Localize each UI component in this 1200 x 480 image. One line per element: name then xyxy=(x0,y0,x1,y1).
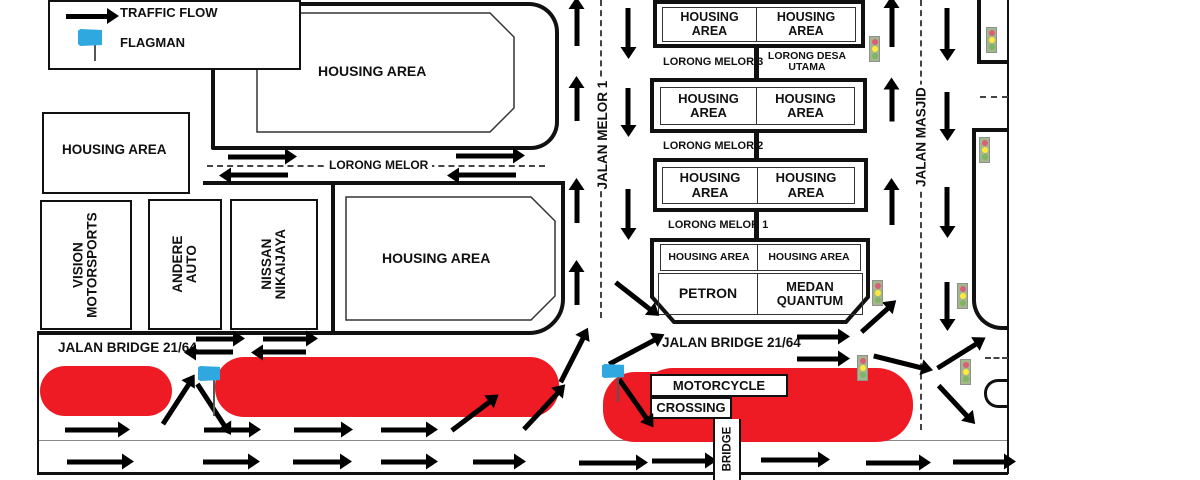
side-road-top-left-edge xyxy=(977,0,981,63)
traffic-flow-arrow xyxy=(945,92,950,130)
side-road-corner xyxy=(984,379,1008,408)
business-nissan-nikaijaya-label: NISSAN NIKAIJAYA xyxy=(260,223,288,307)
traffic-flow-arrow xyxy=(797,357,839,362)
bridge-strip: BRIDGE xyxy=(713,419,741,480)
traffic-flow-arrow xyxy=(626,189,631,229)
traffic-flow-arrow xyxy=(945,8,950,50)
crossing-label: CROSSING xyxy=(656,401,725,415)
traffic-flow-arrow xyxy=(890,189,895,225)
housing-row4-right: HOUSING AREA xyxy=(757,244,861,271)
side-road-stub-top xyxy=(980,96,1008,98)
traffic-flow-icon xyxy=(66,14,108,19)
traffic-flow-arrow xyxy=(937,384,969,418)
traffic-flow-arrow xyxy=(458,173,516,178)
lorong-melor-2-label: LORONG MELOR 2 xyxy=(663,141,763,153)
petron-cell: PETRON xyxy=(658,273,758,315)
housing-row3-right: HOUSING AREA xyxy=(757,167,855,204)
jalan-bridge-top-edge xyxy=(37,331,336,335)
motorcycle-label: MOTORCYCLE xyxy=(673,379,765,393)
traffic-flow-arrow xyxy=(945,282,950,320)
traffic-flow-arrow xyxy=(228,155,286,160)
jalan-melor-1-label: JALAN MELOR 1 xyxy=(596,80,610,190)
crossing-label-box: CROSSING xyxy=(650,397,732,419)
traffic-flow-arrow xyxy=(67,460,123,465)
traffic-light-icon xyxy=(872,280,883,306)
business-vision-motorsports-label: VISION MOTORSPORTS xyxy=(72,212,100,318)
traffic-light-icon xyxy=(957,283,968,309)
traffic-flow-arrow xyxy=(293,460,341,465)
bottom-road-edge xyxy=(37,472,1008,475)
business-vision-motorsports: VISION MOTORSPORTS xyxy=(40,200,132,330)
traffic-flow-arrow xyxy=(558,337,585,384)
side-road-u-shape xyxy=(972,128,1008,330)
traffic-flow-arrow xyxy=(626,88,631,126)
traffic-flow-arrow xyxy=(381,428,427,433)
traffic-flow-arrow xyxy=(953,460,1005,465)
jalan-bridge-left-label: JALAN BRIDGE 21/64 xyxy=(58,341,197,355)
bridge-label: BRIDGE xyxy=(721,427,733,472)
medan-quantum-cell: MEDAN QUANTUM xyxy=(757,273,863,315)
traffic-flow-arrow xyxy=(761,458,819,463)
housing-row1-right: HOUSING AREA xyxy=(756,7,856,42)
housing-row4-left: HOUSING AREA xyxy=(660,244,758,271)
business-andere-auto-label: ANDERE AUTO xyxy=(171,230,199,300)
road-closure-center xyxy=(215,357,559,417)
traffic-flow-arrow xyxy=(195,350,233,355)
traffic-flow-arrow xyxy=(65,428,119,433)
business-nissan-nikaijaya: NISSAN NIKAIJAYA xyxy=(230,199,318,330)
traffic-flow-arrow xyxy=(936,342,978,371)
housing-row2-left: HOUSING AREA xyxy=(660,87,757,125)
traffic-flow-arrow xyxy=(608,338,656,367)
traffic-flow-arrow xyxy=(262,350,306,355)
lorong-desa-utama-label: LORONG DESA UTAMA xyxy=(766,51,848,73)
lorong-melor-label: LORONG MELOR xyxy=(325,159,432,172)
traffic-flow-arrow xyxy=(575,271,580,305)
traffic-flow-arrow xyxy=(626,8,631,48)
traffic-flow-arrow xyxy=(456,154,514,159)
business-andere-auto: ANDERE AUTO xyxy=(148,199,222,330)
motorcycle-label-box: MOTORCYCLE xyxy=(650,374,788,397)
traffic-flow-arrow xyxy=(579,461,637,466)
legend-flagman-label: FLAGMAN xyxy=(120,36,185,50)
housing-row1-left: HOUSING AREA xyxy=(662,7,757,42)
traffic-flow-arrow xyxy=(575,87,580,121)
legend-traffic-flow-label: TRAFFIC FLOW xyxy=(120,6,217,20)
traffic-flow-arrow xyxy=(196,337,234,342)
traffic-flow-arrow xyxy=(797,335,839,340)
lorong-melor-3-label: LORONG MELOR 3 xyxy=(663,57,763,69)
traffic-light-icon xyxy=(979,137,990,163)
traffic-flow-arrow xyxy=(294,428,342,433)
housing-left-label: HOUSING AREA xyxy=(62,143,167,157)
housing-row2-right: HOUSING AREA xyxy=(756,87,855,125)
traffic-flow-arrow xyxy=(890,89,895,122)
housing-row3-left: HOUSING AREA xyxy=(662,167,758,204)
traffic-flow-arrow xyxy=(866,461,920,466)
road-left-edge xyxy=(37,331,39,474)
traffic-flow-arrow xyxy=(575,8,580,46)
traffic-light-icon xyxy=(960,359,971,385)
traffic-flow-arrow xyxy=(230,173,288,178)
road-closure-left xyxy=(40,366,172,416)
jalan-bridge-right-label: JALAN BRIDGE 21/64 xyxy=(662,336,801,350)
housing-mid-label: HOUSING AREA xyxy=(382,251,490,266)
legend-box: TRAFFIC FLOW FLAGMAN xyxy=(48,0,301,70)
traffic-light-icon xyxy=(857,355,868,381)
traffic-management-plan: HOUSING AREA HOUSING AREA LORONG MELOR V… xyxy=(0,0,1200,480)
traffic-flow-arrow xyxy=(263,337,307,342)
lorong-melor-2-road xyxy=(754,131,759,161)
traffic-flow-arrow xyxy=(473,460,515,465)
traffic-flow-arrow xyxy=(381,460,427,465)
jalan-masjid-label: JALAN MASJID xyxy=(914,85,928,190)
traffic-flow-arrow xyxy=(575,189,580,223)
traffic-light-icon xyxy=(986,27,997,53)
side-road-top-bottom-edge xyxy=(977,60,1008,64)
housing-top-label: HOUSING AREA xyxy=(318,64,426,79)
side-road-stub-bottom xyxy=(985,357,1008,359)
traffic-flow-arrow xyxy=(203,460,249,465)
traffic-light-icon xyxy=(869,36,880,62)
traffic-flow-arrow xyxy=(945,187,950,227)
traffic-flow-arrow xyxy=(652,459,706,464)
traffic-flow-arrow xyxy=(890,7,895,47)
traffic-flow-arrow xyxy=(614,280,652,311)
